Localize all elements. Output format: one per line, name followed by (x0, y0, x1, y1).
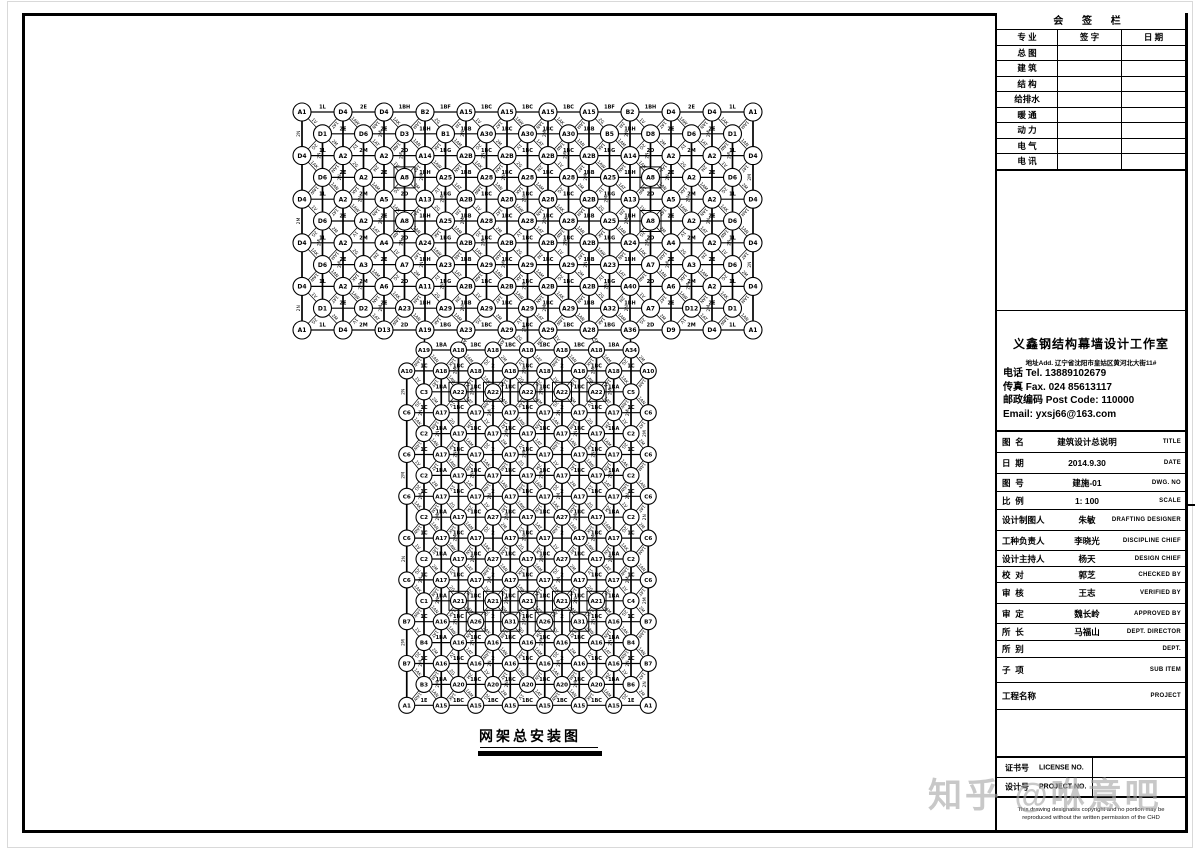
node-label: A2B (582, 284, 596, 291)
svg-text:1BB: 1BB (583, 214, 594, 220)
signoff-row: 电 气 (997, 139, 1185, 155)
svg-text:1AK: 1AK (555, 290, 565, 300)
node-label: A30 (562, 131, 575, 138)
svg-text:2: 2 (560, 489, 564, 495)
node-label: A19 (418, 348, 430, 354)
svg-text:1BC: 1BC (543, 257, 554, 263)
node-label: A2 (708, 284, 717, 291)
svg-text:2G: 2G (515, 248, 524, 257)
row-label-en: CHECKED BY (1138, 572, 1181, 578)
svg-text:1BC: 1BC (522, 363, 533, 369)
titleblock-row: 图 号建施-01DWG. NO (997, 474, 1185, 492)
row-label-en: TITLE (1163, 439, 1181, 445)
titleblock-row: 工程名称PROJECT (997, 683, 1185, 710)
svg-text:2M: 2M (687, 235, 695, 241)
node-label: D4 (379, 109, 388, 116)
svg-text:1AT: 1AT (453, 182, 463, 192)
row-label-en: DATE (1164, 460, 1181, 466)
svg-text:1BC: 1BC (591, 572, 602, 578)
node-label: A1 (298, 327, 307, 334)
svg-text:2G: 2G (586, 417, 594, 426)
node-label: A1 (749, 109, 758, 116)
svg-text:1BG: 1BG (440, 279, 451, 285)
node-label: A2 (359, 218, 368, 225)
node-label: D4 (748, 196, 757, 203)
node-label: A8 (646, 175, 655, 182)
node-label: A29 (439, 305, 452, 312)
node-label: A17 (435, 494, 447, 500)
svg-text:1AM: 1AM (370, 181, 381, 192)
svg-text:1C: 1C (420, 572, 427, 578)
svg-text:1C: 1C (420, 489, 427, 495)
node-label: A2 (667, 153, 676, 160)
svg-text:2G: 2G (310, 142, 319, 151)
svg-text:2: 2 (560, 363, 564, 369)
svg-text:1BC: 1BC (522, 192, 533, 198)
node-label: A18 (539, 369, 551, 375)
svg-text:2G: 2G (448, 668, 456, 677)
node-label: C2 (627, 557, 635, 563)
svg-text:1AN: 1AN (698, 207, 708, 218)
svg-text:2G: 2G (351, 161, 360, 170)
svg-text:1BA: 1BA (436, 468, 447, 474)
svg-text:1V: 1V (351, 229, 359, 237)
svg-text:2M: 2M (658, 313, 667, 322)
svg-text:2M: 2M (494, 313, 503, 322)
node-label: A17 (573, 411, 585, 417)
svg-text:2G: 2G (517, 459, 525, 468)
svg-text:2E: 2E (709, 126, 716, 132)
node-label: A15 (573, 703, 585, 709)
svg-text:1AT: 1AT (602, 563, 612, 573)
svg-text:1V: 1V (679, 317, 687, 325)
row-label-en: DISCIPLINE CHIEF (1123, 538, 1181, 544)
svg-text:1BC: 1BC (574, 677, 585, 683)
node-label: A27 (556, 557, 568, 563)
svg-text:1BC: 1BC (470, 635, 481, 641)
svg-text:1AN: 1AN (567, 604, 577, 615)
title-block: 会 签 栏 专 业签 字日 期 总 图建 筑结 构给排水暖 通动 力电 气电 讯… (995, 13, 1185, 830)
svg-text:1AT: 1AT (453, 269, 463, 279)
svg-text:1AT: 1AT (657, 207, 667, 217)
node-label: A16 (608, 620, 620, 626)
signoff-row: 电 讯 (997, 154, 1185, 170)
svg-text:1AK: 1AK (412, 667, 422, 678)
svg-text:1AK: 1AK (619, 625, 629, 636)
svg-text:1BA: 1BA (436, 384, 447, 390)
svg-text:1AK: 1AK (550, 584, 560, 595)
svg-text:1BG: 1BG (604, 148, 615, 154)
svg-text:1AK: 1AK (309, 160, 319, 170)
svg-text:1V: 1V (413, 626, 421, 634)
svg-text:1AM: 1AM (739, 119, 750, 130)
svg-text:2M: 2M (499, 438, 508, 447)
svg-text:1BC: 1BC (522, 531, 533, 537)
svg-text:1AK: 1AK (473, 247, 483, 257)
svg-text:1BC: 1BC (539, 510, 550, 516)
node-label: D6 (728, 218, 737, 225)
svg-text:1BC: 1BC (591, 405, 602, 411)
svg-text:1V: 1V (720, 248, 728, 256)
node-label: A36 (624, 327, 637, 334)
node-label: A17 (504, 494, 516, 500)
svg-text:1E: 1E (628, 698, 635, 704)
svg-text:1BC: 1BC (591, 447, 602, 453)
node-label: D6 (318, 262, 327, 269)
titleblock-row: 工种负责人李晓光DISCIPLINE CHIEF (997, 531, 1185, 551)
node-label: A8 (646, 218, 655, 225)
watermark: 知乎 @咻意吧 (928, 768, 1162, 817)
node-label: B7 (403, 662, 411, 668)
svg-text:1BC: 1BC (574, 384, 585, 390)
node-label: B2 (626, 109, 635, 116)
row-label-en: DRAFTING DESIGNER (1112, 517, 1181, 523)
signoff-discipline: 电 气 (997, 139, 1057, 154)
svg-text:2E: 2E (340, 257, 347, 263)
node-label: C3 (420, 390, 428, 396)
signoff-discipline: 暖 通 (997, 108, 1057, 123)
svg-text:2G: 2G (351, 248, 360, 257)
svg-text:2E: 2E (709, 301, 716, 307)
svg-text:2G: 2G (638, 142, 647, 151)
svg-text:1V: 1V (310, 291, 318, 299)
company-postcode: 邮政编码 Post Code: 110000 (997, 394, 1185, 408)
signoff-discipline: 电 讯 (997, 154, 1057, 170)
svg-text:1BC: 1BC (591, 656, 602, 662)
signoff-signature-cell (1057, 46, 1121, 61)
svg-text:1AK: 1AK (719, 290, 729, 300)
node-label: A2B (582, 240, 596, 247)
svg-text:1V: 1V (620, 668, 628, 676)
node-label: A29 (521, 305, 534, 312)
svg-text:1V: 1V (620, 501, 628, 509)
signoff-table: 会 签 栏 专 业签 字日 期 总 图建 筑结 构给排水暖 通动 力电 气电 讯 (997, 13, 1185, 171)
node-label: A2B (500, 153, 514, 160)
svg-text:2E: 2E (381, 257, 388, 263)
svg-text:1AM: 1AM (616, 138, 627, 149)
svg-text:2M: 2M (740, 182, 749, 191)
svg-text:1V: 1V (482, 417, 490, 425)
svg-text:2: 2 (491, 531, 495, 537)
node-label: A17 (608, 411, 620, 417)
svg-text:1BC: 1BC (522, 698, 533, 704)
node-label: A31 (573, 620, 585, 626)
svg-text:1AK: 1AK (391, 290, 401, 300)
svg-text:1AN: 1AN (698, 294, 708, 305)
svg-text:1AT: 1AT (699, 225, 709, 235)
node-label: A18 (470, 369, 482, 375)
row-value: 杨天 (1039, 553, 1135, 565)
node-label: A1 (403, 703, 411, 709)
node-label: B7 (403, 620, 411, 626)
svg-text:2G: 2G (586, 501, 594, 510)
row-label: 图 名 (1002, 436, 1024, 448)
node-label: A20 (590, 682, 602, 688)
svg-text:2E: 2E (340, 301, 347, 307)
node-label: C1 (420, 599, 428, 605)
svg-text:2M: 2M (412, 269, 421, 278)
node-label: A16 (590, 641, 602, 647)
signoff-rows: 总 图建 筑结 构给排水暖 通动 力电 气电 讯 (997, 46, 1185, 170)
node-label: A15 (460, 109, 473, 116)
svg-text:1AN: 1AN (329, 268, 339, 279)
node-label: A28 (501, 196, 514, 203)
node-label: A17 (521, 557, 533, 563)
svg-text:1AT: 1AT (602, 646, 612, 656)
titleblock-row: 审 定魏长岭APPROVED BY (997, 604, 1185, 624)
svg-text:1C: 1C (627, 447, 634, 453)
svg-text:1BC: 1BC (453, 698, 464, 704)
node-label: A8 (400, 175, 409, 182)
node-label: A17 (590, 432, 602, 438)
svg-text:2: 2 (491, 572, 495, 578)
svg-text:1V: 1V (679, 229, 687, 237)
node-label: A25 (603, 175, 616, 182)
svg-text:1BC: 1BC (502, 126, 513, 132)
node-label: A28 (480, 175, 493, 182)
node-label: A15 (583, 109, 596, 116)
svg-text:2E: 2E (709, 170, 716, 176)
node-label: C6 (644, 536, 652, 542)
svg-text:1AM: 1AM (329, 250, 340, 261)
node-label: A17 (435, 536, 447, 542)
svg-text:1AN: 1AN (636, 395, 646, 406)
titleblock-row: 比 例1: 100SCALE (997, 492, 1185, 510)
node-label: A15 (539, 703, 551, 709)
node-label: A17 (573, 536, 585, 542)
svg-text:2G: 2G (482, 358, 490, 367)
node-label: A17 (521, 432, 533, 438)
node-label: A2B (582, 153, 596, 160)
svg-text:2: 2 (491, 614, 495, 620)
node-label: A28 (562, 175, 575, 182)
svg-text:1AT: 1AT (602, 479, 612, 489)
svg-text:1V: 1V (310, 117, 318, 125)
node-label: A2B (459, 240, 473, 247)
svg-text:1BC: 1BC (539, 426, 550, 432)
svg-text:1BC: 1BC (591, 489, 602, 495)
svg-text:1AN: 1AN (636, 646, 646, 657)
svg-text:2G: 2G (597, 291, 606, 300)
titleblock-row: 校 对郭芝CHECKED BY (997, 567, 1185, 583)
svg-text:1AM: 1AM (616, 312, 627, 323)
svg-text:2: 2 (560, 531, 564, 537)
svg-text:1BC: 1BC (505, 635, 516, 641)
svg-text:1AT: 1AT (636, 420, 646, 430)
svg-text:1BC: 1BC (453, 489, 464, 495)
node-label: A15 (504, 703, 516, 709)
node-label: A19 (419, 327, 432, 334)
node-label: A16 (435, 620, 447, 626)
row-label-en: DWG. NO (1152, 480, 1181, 486)
node-label: A16 (470, 662, 482, 668)
node-label: C6 (644, 578, 652, 584)
svg-text:1BC: 1BC (481, 148, 492, 154)
svg-text:1BC: 1BC (505, 677, 516, 683)
signoff-date-cell (1121, 154, 1185, 170)
svg-text:2M: 2M (494, 139, 503, 148)
node-label: A18 (452, 348, 464, 354)
svg-text:1AK: 1AK (412, 500, 422, 511)
signoff-row: 建 筑 (997, 61, 1185, 77)
svg-text:1AT: 1AT (535, 225, 545, 235)
node-label: D6 (359, 131, 368, 138)
node-label: A29 (562, 262, 575, 269)
node-label: A25 (603, 218, 616, 225)
svg-text:1BC: 1BC (563, 105, 574, 111)
svg-text:1AK: 1AK (309, 247, 319, 257)
svg-text:1V: 1V (556, 248, 564, 256)
node-label: A2B (541, 284, 555, 291)
svg-text:1C: 1C (627, 405, 634, 411)
titleblock-empty-box (997, 710, 1185, 758)
svg-text:1BC: 1BC (574, 510, 585, 516)
svg-text:2G: 2G (597, 204, 606, 213)
svg-text:1AN: 1AN (370, 207, 380, 218)
node-label: D12 (685, 305, 698, 312)
svg-text:1AM: 1AM (616, 225, 627, 236)
node-label: C6 (403, 411, 411, 417)
node-label: A17 (452, 432, 464, 438)
svg-text:1BC: 1BC (505, 426, 516, 432)
signoff-header: 会 签 栏 (997, 13, 1185, 30)
svg-text:2M: 2M (568, 396, 577, 405)
svg-text:1AN: 1AN (370, 119, 380, 130)
signoff-date-cell (1121, 46, 1185, 61)
node-label: D4 (666, 109, 675, 116)
svg-text:2M: 2M (494, 226, 503, 235)
signoff-row: 结 构 (997, 77, 1185, 93)
svg-text:1AN: 1AN (698, 119, 708, 130)
svg-text:2D: 2D (401, 279, 409, 285)
node-label: D8 (646, 131, 655, 138)
row-label-en: PROJECT (1151, 693, 1181, 699)
svg-text:1BC: 1BC (522, 279, 533, 285)
signoff-signature-cell (1057, 108, 1121, 123)
node-label: D3 (400, 131, 409, 138)
svg-text:1AN: 1AN (657, 181, 667, 192)
titleblock-row: 所 长马福山DEPT. DIRECTOR (997, 624, 1185, 641)
svg-text:1BC: 1BC (522, 105, 533, 111)
titleblock-row: 子 项SUB ITEM (997, 658, 1185, 683)
svg-text:2M: 2M (642, 597, 648, 604)
svg-text:1AN: 1AN (575, 225, 585, 236)
svg-text:2G: 2G (638, 229, 647, 238)
row-label: 图 号 (1002, 477, 1024, 489)
svg-text:1BB: 1BB (460, 126, 471, 132)
svg-text:2M: 2M (401, 639, 407, 646)
node-label: D6 (318, 175, 327, 182)
svg-text:1V: 1V (474, 291, 482, 299)
svg-text:1AN: 1AN (493, 268, 503, 279)
node-label: A29 (480, 262, 493, 269)
svg-text:2G: 2G (310, 317, 319, 326)
node-label: A17 (452, 557, 464, 563)
svg-text:1BF: 1BF (604, 105, 615, 111)
svg-text:1BC: 1BC (574, 593, 585, 599)
svg-text:1L: 1L (319, 148, 326, 154)
signoff-date-cell (1121, 123, 1185, 138)
titleblock-row: 审 核王志VERIFIED BY (997, 583, 1185, 604)
node-label: D2 (359, 305, 368, 312)
svg-text:1BH: 1BH (419, 126, 430, 132)
company-block: 义鑫钢结构幕墙设计工作室 地址Add. 辽宁省沈阳市皇姑区黄河北大街11# 电话… (997, 310, 1185, 432)
node-label: A24 (419, 240, 432, 247)
svg-text:2G: 2G (448, 417, 456, 426)
svg-text:1AN: 1AN (567, 437, 577, 448)
node-label: A18 (590, 348, 602, 354)
svg-text:1AK: 1AK (391, 116, 401, 126)
node-label: C6 (644, 494, 652, 500)
node-label: A1 (298, 109, 307, 116)
node-label: A23 (603, 262, 616, 269)
svg-text:2D: 2D (401, 192, 409, 198)
svg-text:2: 2 (560, 447, 564, 453)
svg-text:1BH: 1BH (624, 214, 635, 220)
svg-text:2N: 2N (642, 514, 648, 520)
svg-text:1BC: 1BC (502, 170, 513, 176)
node-label: A26 (539, 620, 551, 626)
svg-text:1AT: 1AT (699, 312, 709, 322)
svg-text:1BC: 1BC (481, 235, 492, 241)
svg-text:1C: 1C (420, 363, 427, 369)
node-label: D1 (318, 131, 327, 138)
node-label: A18 (504, 369, 516, 375)
svg-text:1BH: 1BH (419, 301, 430, 307)
svg-text:1L: 1L (319, 192, 326, 198)
signoff-col-header: 专 业 (997, 30, 1057, 45)
svg-text:2M: 2M (430, 647, 439, 656)
svg-text:2G: 2G (679, 248, 688, 257)
svg-text:1AK: 1AK (619, 375, 629, 386)
svg-text:2E: 2E (381, 170, 388, 176)
node-label: A34 (625, 348, 637, 354)
svg-text:2M: 2M (401, 472, 407, 479)
svg-text:1BC: 1BC (522, 447, 533, 453)
svg-text:2G: 2G (515, 334, 524, 343)
node-label: A7 (400, 262, 409, 269)
svg-text:2E: 2E (381, 126, 388, 132)
node-label: A4 (667, 240, 676, 247)
svg-text:2E: 2E (381, 214, 388, 220)
node-label: A22 (487, 390, 499, 396)
svg-text:2G: 2G (515, 161, 524, 170)
svg-text:2E: 2E (668, 126, 675, 132)
row-label-en: DESIGN CHIEF (1135, 556, 1181, 562)
svg-text:1BC: 1BC (453, 531, 464, 537)
svg-text:1BA: 1BA (436, 343, 447, 349)
row-value: 建筑设计总说明 (1039, 436, 1135, 448)
row-label: 审 核 (1002, 587, 1024, 599)
company-address: 地址Add. 辽宁省沈阳市皇姑区黄河北大街11# (997, 357, 1185, 367)
svg-text:2N: 2N (747, 261, 753, 267)
svg-text:1L: 1L (729, 105, 736, 111)
svg-text:1AT: 1AT (699, 138, 709, 148)
node-label: A16 (504, 662, 516, 668)
node-label: A16 (452, 641, 464, 647)
svg-text:1AN: 1AN (498, 479, 508, 490)
svg-text:2E: 2E (668, 214, 675, 220)
svg-text:1BA: 1BA (608, 384, 619, 390)
svg-text:1V: 1V (413, 376, 421, 384)
svg-text:2G: 2G (482, 525, 490, 534)
node-label: D4 (338, 327, 347, 334)
svg-text:2N: 2N (296, 305, 302, 311)
row-value: 王志 (1039, 587, 1135, 599)
svg-text:1BH: 1BH (624, 257, 635, 263)
node-label: D1 (318, 305, 327, 312)
node-label: A17 (608, 494, 620, 500)
